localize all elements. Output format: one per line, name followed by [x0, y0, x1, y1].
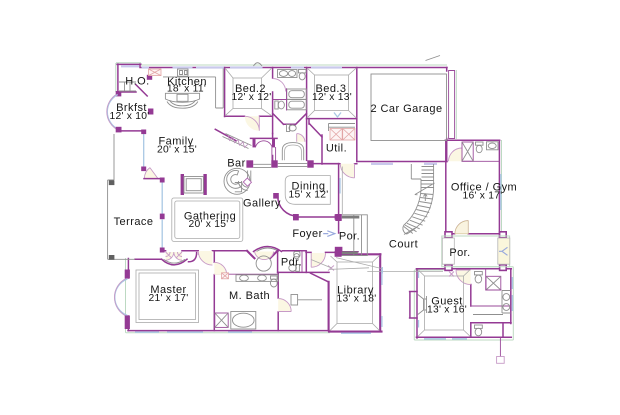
- svg-text:Gallery: Gallery: [243, 198, 281, 210]
- svg-text:Util.: Util.: [326, 143, 347, 155]
- svg-text:Terrace: Terrace: [114, 216, 154, 228]
- svg-text:15' x 12': 15' x 12': [289, 190, 329, 201]
- svg-text:13' x 16': 13' x 16': [427, 305, 467, 316]
- svg-text:21' x 17': 21' x 17': [149, 293, 189, 304]
- svg-text:H.O.: H.O.: [125, 76, 149, 88]
- svg-text:2 Car Garage: 2 Car Garage: [370, 103, 442, 115]
- svg-text:20' x 15': 20' x 15': [189, 219, 229, 230]
- svg-text:20' x 15': 20' x 15': [157, 145, 197, 156]
- svg-text:Court: Court: [389, 239, 418, 251]
- svg-text:13' x 18': 13' x 18': [337, 294, 377, 305]
- svg-text:12' x 10': 12' x 10': [110, 111, 150, 122]
- svg-text:18' x 11': 18' x 11': [167, 83, 206, 94]
- svg-text:M. Bath: M. Bath: [229, 290, 270, 302]
- svg-text:Pdr.: Pdr.: [281, 257, 302, 269]
- svg-text:16' x 17': 16' x 17': [463, 190, 503, 201]
- svg-text:12' x 13': 12' x 13': [312, 92, 352, 103]
- svg-text:Por.: Por.: [339, 231, 360, 243]
- svg-text:Bar: Bar: [227, 158, 245, 170]
- svg-text:12' x 12': 12' x 12': [232, 92, 272, 103]
- svg-text:Por.: Por.: [449, 247, 470, 259]
- svg-text:Foyer: Foyer: [292, 228, 322, 240]
